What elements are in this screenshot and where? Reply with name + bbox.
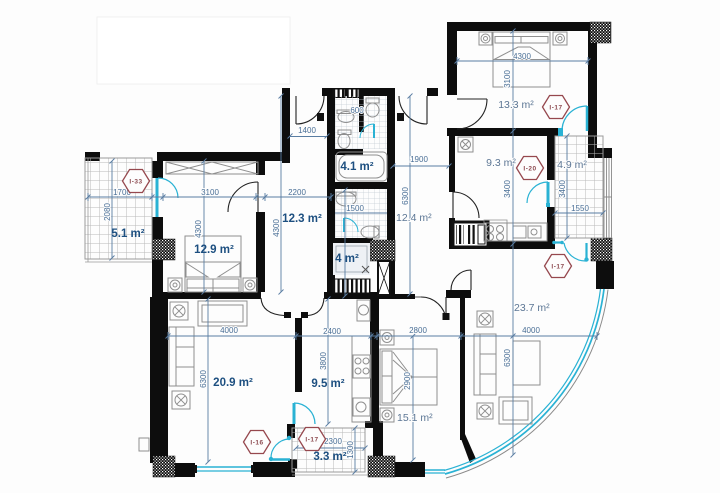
svg-text:4300: 4300 xyxy=(272,219,281,237)
svg-text:I-17: I-17 xyxy=(551,264,564,271)
svg-text:I-33: I-33 xyxy=(129,179,142,186)
svg-text:I-17: I-17 xyxy=(305,437,318,444)
svg-text:1900: 1900 xyxy=(410,155,428,164)
svg-text:2080: 2080 xyxy=(103,203,112,221)
svg-text:23.7 m²: 23.7 m² xyxy=(514,302,550,314)
svg-text:I-17: I-17 xyxy=(549,105,562,112)
svg-text:12.9 m²: 12.9 m² xyxy=(194,244,234,256)
svg-text:12.3 m²: 12.3 m² xyxy=(282,213,322,225)
svg-text:2300: 2300 xyxy=(324,437,342,446)
svg-text:1500: 1500 xyxy=(346,204,364,213)
svg-text:1400: 1400 xyxy=(298,126,316,135)
svg-text:9.5 m²: 9.5 m² xyxy=(311,378,344,390)
svg-text:5.1 m²: 5.1 m² xyxy=(111,228,144,240)
svg-text:6300: 6300 xyxy=(503,349,512,367)
svg-text:12.4 m²: 12.4 m² xyxy=(396,212,432,224)
svg-text:2900: 2900 xyxy=(403,372,412,390)
svg-text:4300: 4300 xyxy=(194,220,203,238)
svg-text:6300: 6300 xyxy=(199,370,208,388)
svg-text:600: 600 xyxy=(350,106,364,115)
svg-text:2800: 2800 xyxy=(409,326,427,335)
svg-text:I-20: I-20 xyxy=(523,166,536,173)
svg-text:15.1 m²: 15.1 m² xyxy=(397,412,433,424)
svg-text:4000: 4000 xyxy=(522,326,540,335)
svg-text:2400: 2400 xyxy=(323,327,341,336)
svg-text:6300: 6300 xyxy=(401,187,410,205)
svg-text:I-16: I-16 xyxy=(250,440,263,447)
svg-text:3100: 3100 xyxy=(201,188,219,197)
svg-text:1300: 1300 xyxy=(346,441,355,459)
svg-text:3.3 m²: 3.3 m² xyxy=(313,451,346,463)
svg-text:4.9 m²: 4.9 m² xyxy=(557,159,587,171)
svg-text:4 m²: 4 m² xyxy=(335,253,359,265)
svg-text:3400: 3400 xyxy=(558,180,567,198)
svg-text:3100: 3100 xyxy=(503,70,512,88)
svg-text:4000: 4000 xyxy=(220,326,238,335)
svg-text:20.9 m²: 20.9 m² xyxy=(213,377,253,389)
svg-text:3800: 3800 xyxy=(319,352,328,370)
svg-text:1550: 1550 xyxy=(571,204,589,213)
svg-text:3400: 3400 xyxy=(503,180,512,198)
svg-text:2200: 2200 xyxy=(288,188,306,197)
svg-text:4300: 4300 xyxy=(513,52,531,61)
svg-text:13.3 m²: 13.3 m² xyxy=(498,99,534,111)
svg-text:4.1 m²: 4.1 m² xyxy=(340,161,373,173)
svg-text:9.3 m²: 9.3 m² xyxy=(486,157,516,169)
